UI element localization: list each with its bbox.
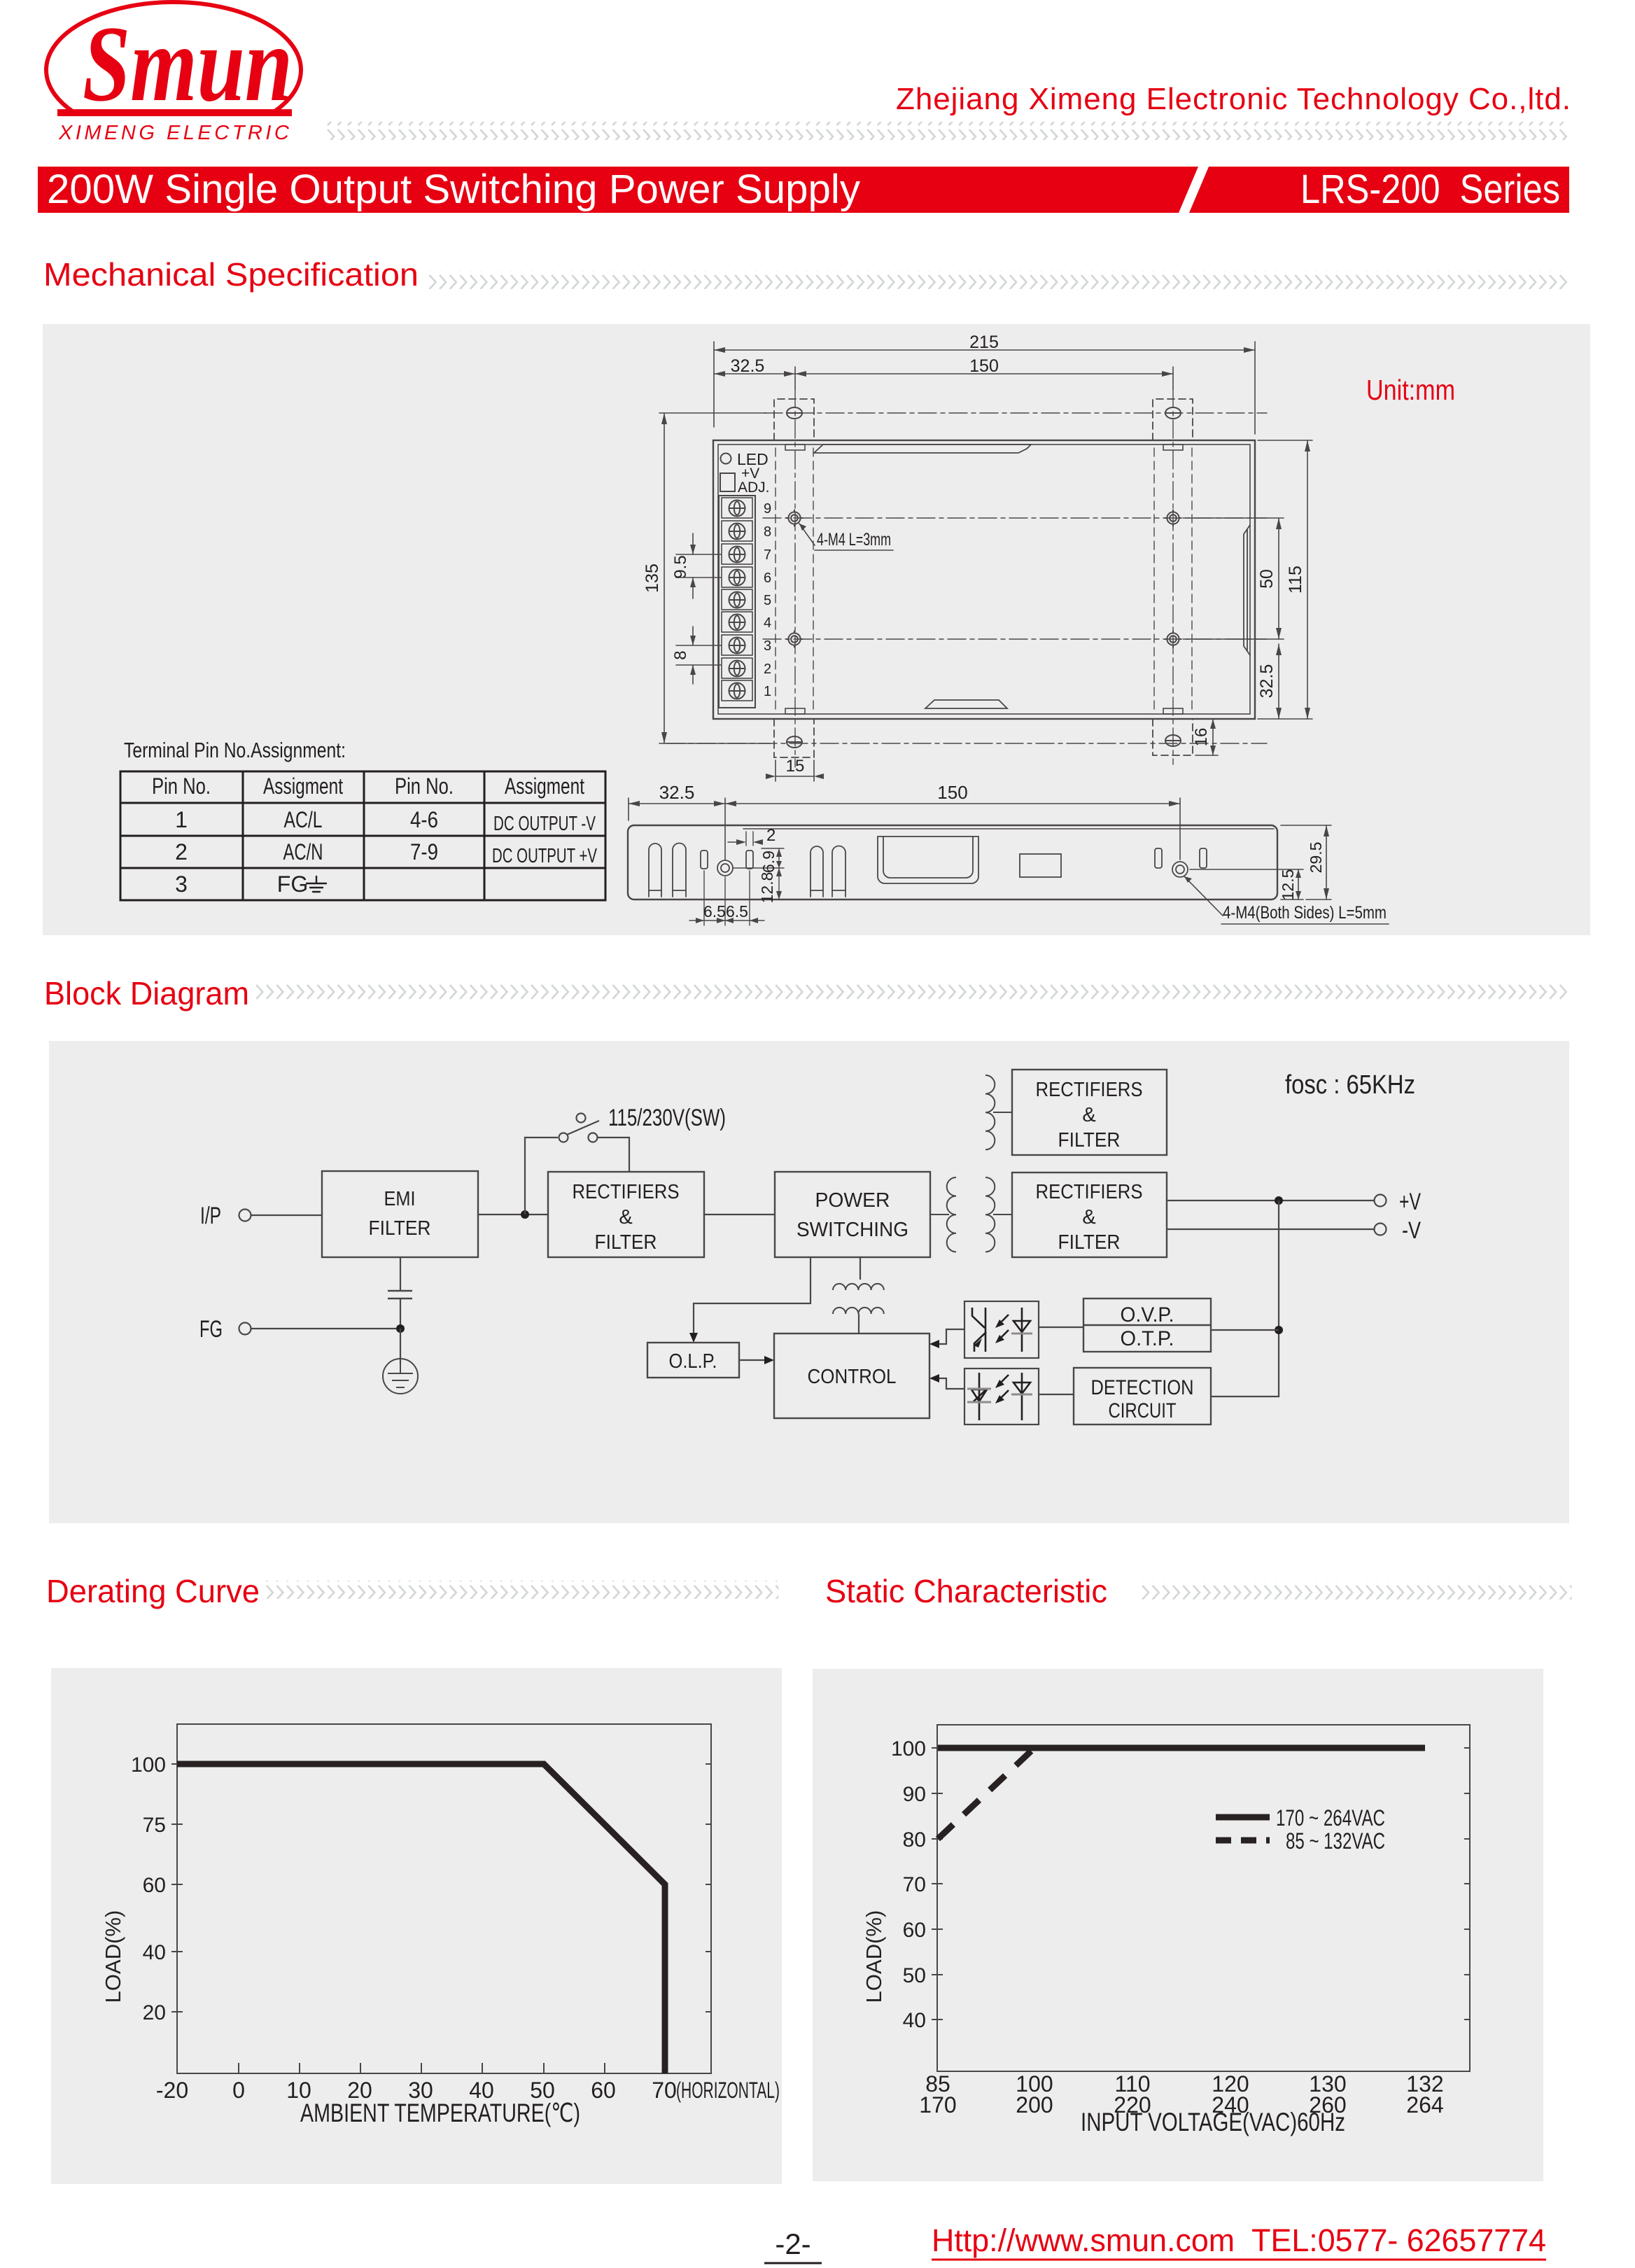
svg-text:AC/N: AC/N bbox=[283, 839, 323, 864]
svg-text:Unit:mm: Unit:mm bbox=[1366, 374, 1455, 406]
svg-text:8: 8 bbox=[764, 524, 771, 540]
svg-text:FILTER: FILTER bbox=[369, 1217, 431, 1240]
svg-text:100: 100 bbox=[891, 1737, 926, 1760]
svg-text:60: 60 bbox=[591, 2078, 616, 2103]
svg-text:32.5: 32.5 bbox=[1257, 664, 1277, 699]
svg-text:6.5: 6.5 bbox=[703, 902, 726, 920]
svg-text:SWITCHING: SWITCHING bbox=[797, 1219, 908, 1241]
svg-text:+V: +V bbox=[1399, 1189, 1421, 1215]
svg-text:(HORIZONTAL): (HORIZONTAL) bbox=[676, 2078, 780, 2103]
svg-text:70: 70 bbox=[652, 2078, 677, 2103]
svg-text:4-6: 4-6 bbox=[410, 807, 438, 832]
svg-text:7: 7 bbox=[764, 547, 771, 563]
svg-text:O.T.P.: O.T.P. bbox=[1121, 1327, 1174, 1350]
svg-text:O.V.P.: O.V.P. bbox=[1121, 1303, 1174, 1326]
svg-text:12.5: 12.5 bbox=[1279, 869, 1297, 901]
svg-text:-2-: -2- bbox=[775, 2227, 811, 2260]
svg-text:1: 1 bbox=[764, 684, 771, 699]
svg-text:DETECTION: DETECTION bbox=[1091, 1376, 1194, 1399]
svg-text:Block Diagram: Block Diagram bbox=[44, 975, 249, 1011]
svg-text:FILTER: FILTER bbox=[1058, 1129, 1121, 1151]
svg-text:Derating Curve: Derating Curve bbox=[46, 1573, 260, 1609]
svg-text:2: 2 bbox=[175, 839, 188, 864]
svg-text:4-M4(Both Sides) L=5mm: 4-M4(Both Sides) L=5mm bbox=[1223, 903, 1387, 923]
svg-text:RECTIFIERS: RECTIFIERS bbox=[573, 1181, 680, 1203]
svg-text:FG: FG bbox=[277, 871, 308, 897]
svg-text:264: 264 bbox=[1406, 2092, 1443, 2117]
svg-text:40: 40 bbox=[143, 1941, 166, 1964]
svg-text:AMBIENT TEMPERATURE(℃): AMBIENT TEMPERATURE(℃) bbox=[300, 2099, 580, 2127]
svg-text:215: 215 bbox=[969, 332, 999, 352]
svg-text:FG: FG bbox=[199, 1316, 223, 1343]
svg-text:EMI: EMI bbox=[384, 1188, 416, 1210]
svg-text:LOAD(%): LOAD(%) bbox=[101, 1910, 125, 2003]
svg-text:Smun: Smun bbox=[83, 3, 293, 124]
svg-text:7-9: 7-9 bbox=[410, 839, 438, 864]
svg-text:200W Single Output Switching P: 200W Single Output Switching Power Suppl… bbox=[47, 167, 860, 212]
svg-text:8: 8 bbox=[671, 650, 690, 659]
svg-text:FILTER: FILTER bbox=[1058, 1231, 1121, 1254]
svg-text:32.5: 32.5 bbox=[731, 356, 765, 376]
svg-text:170: 170 bbox=[919, 2092, 956, 2117]
svg-text:150: 150 bbox=[937, 782, 967, 803]
svg-text:CONTROL: CONTROL bbox=[808, 1366, 897, 1388]
svg-text:DC OUTPUT +V: DC OUTPUT +V bbox=[492, 845, 597, 867]
svg-text:50: 50 bbox=[1257, 569, 1277, 589]
svg-text:4-M4 L=3mm: 4-M4 L=3mm bbox=[817, 530, 891, 549]
svg-text:150: 150 bbox=[969, 356, 999, 376]
svg-text:fosc : 65KHz: fosc : 65KHz bbox=[1285, 1070, 1415, 1100]
svg-text:16: 16 bbox=[1192, 728, 1211, 747]
svg-text:&: & bbox=[1082, 1104, 1095, 1126]
svg-text:&: & bbox=[1082, 1206, 1095, 1228]
svg-text:70: 70 bbox=[903, 1873, 926, 1896]
svg-text:115/230V(SW): 115/230V(SW) bbox=[608, 1105, 726, 1131]
svg-text:Zhejiang Ximeng Electronic Tec: Zhejiang Ximeng Electronic Technology Co… bbox=[896, 82, 1571, 116]
svg-text:2: 2 bbox=[764, 661, 771, 677]
svg-text:2: 2 bbox=[766, 826, 776, 845]
svg-text:100: 100 bbox=[131, 1753, 166, 1777]
svg-text:Assigment: Assigment bbox=[505, 773, 584, 799]
svg-text:115: 115 bbox=[1286, 566, 1305, 594]
svg-text:90: 90 bbox=[903, 1783, 926, 1806]
svg-text:Terminal Pin No.Assignment:: Terminal Pin No.Assignment: bbox=[124, 738, 346, 762]
svg-text:Http://www.smun.com TEL:0577-: Http://www.smun.com TEL:0577- 62657774 bbox=[932, 2222, 1546, 2258]
svg-text:Mechanical Specification: Mechanical Specification bbox=[43, 256, 419, 293]
svg-text:20: 20 bbox=[143, 2001, 166, 2024]
svg-text:LRS-200 Series: LRS-200 Series bbox=[1300, 167, 1560, 212]
svg-text:15: 15 bbox=[786, 757, 805, 776]
svg-text:50: 50 bbox=[903, 1964, 926, 1987]
svg-text:9: 9 bbox=[764, 501, 771, 517]
svg-text:135: 135 bbox=[643, 563, 662, 593]
svg-text:170 ~ 264VAC: 170 ~ 264VAC bbox=[1276, 1805, 1385, 1830]
svg-text:0: 0 bbox=[232, 2078, 245, 2103]
svg-text:FILTER: FILTER bbox=[595, 1231, 657, 1254]
svg-text:Pin No.: Pin No. bbox=[152, 773, 211, 799]
svg-text:XIMENG ELECTRIC: XIMENG ELECTRIC bbox=[58, 122, 292, 144]
svg-text:9.5: 9.5 bbox=[671, 555, 690, 578]
svg-text:CIRCUIT: CIRCUIT bbox=[1109, 1399, 1177, 1422]
svg-text:200: 200 bbox=[1016, 2092, 1053, 2117]
svg-text:AC/L: AC/L bbox=[284, 807, 323, 832]
svg-text:LOAD(%): LOAD(%) bbox=[862, 1910, 886, 2003]
svg-text:6.9: 6.9 bbox=[759, 850, 778, 873]
svg-text:INPUT VOLTAGE(VAC)60Hz: INPUT VOLTAGE(VAC)60Hz bbox=[1081, 2108, 1345, 2136]
svg-text:12.8: 12.8 bbox=[758, 872, 776, 904]
svg-text:Static Characteristic: Static Characteristic bbox=[825, 1573, 1107, 1609]
svg-text:DC OUTPUT -V: DC OUTPUT -V bbox=[493, 813, 596, 835]
svg-text:ADJ.: ADJ. bbox=[738, 479, 770, 496]
svg-text:POWER: POWER bbox=[815, 1189, 890, 1212]
svg-text:&: & bbox=[619, 1206, 632, 1228]
svg-text:5: 5 bbox=[764, 593, 771, 608]
svg-text:3: 3 bbox=[175, 871, 188, 897]
svg-text:32.5: 32.5 bbox=[659, 782, 695, 803]
svg-text:60: 60 bbox=[903, 1919, 926, 1942]
svg-text:85 ~ 132VAC: 85 ~ 132VAC bbox=[1286, 1828, 1385, 1854]
svg-text:O.L.P.: O.L.P. bbox=[669, 1350, 717, 1373]
svg-text:40: 40 bbox=[903, 2009, 926, 2032]
svg-text:3: 3 bbox=[764, 638, 771, 654]
svg-text:I/P: I/P bbox=[200, 1203, 221, 1229]
svg-text:Pin No.: Pin No. bbox=[395, 773, 454, 799]
svg-text:RECTIFIERS: RECTIFIERS bbox=[1036, 1079, 1143, 1101]
svg-text:Assigment: Assigment bbox=[263, 773, 343, 799]
svg-text:RECTIFIERS: RECTIFIERS bbox=[1036, 1181, 1143, 1203]
svg-text:80: 80 bbox=[903, 1828, 926, 1851]
svg-text:6.5: 6.5 bbox=[726, 902, 748, 920]
svg-text:1: 1 bbox=[175, 807, 188, 832]
svg-text:60: 60 bbox=[143, 1874, 166, 1897]
svg-text:75: 75 bbox=[143, 1814, 166, 1837]
svg-text:-20: -20 bbox=[156, 2078, 188, 2103]
svg-text:4: 4 bbox=[764, 615, 771, 631]
svg-text:-V: -V bbox=[1402, 1217, 1421, 1244]
svg-text:6: 6 bbox=[764, 570, 771, 586]
svg-text:29.5: 29.5 bbox=[1307, 842, 1325, 874]
